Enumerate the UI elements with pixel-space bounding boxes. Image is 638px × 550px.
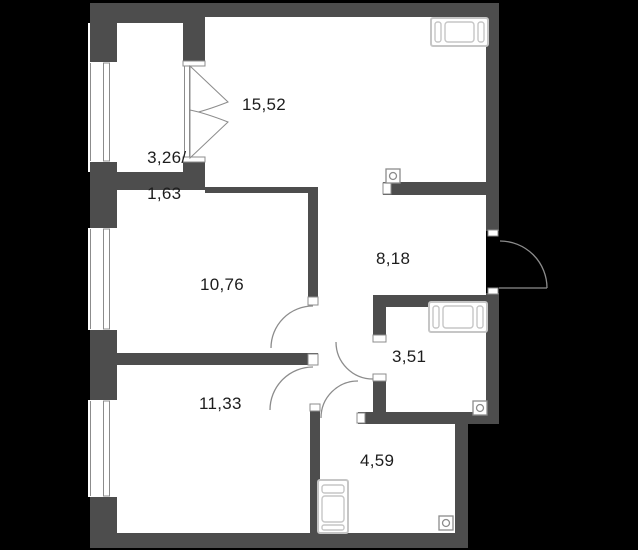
room-label-storage: 4,59: [360, 452, 394, 470]
bathtub-icon: [431, 18, 488, 46]
room-label-bathroom: 3,51: [392, 348, 426, 366]
balcony-area-reduced: 1,63: [147, 184, 181, 203]
room-label-living-room: 15,52: [242, 96, 286, 114]
room-label-bedroom-upper: 10,76: [200, 276, 244, 294]
bathtub-icon: [429, 302, 487, 332]
room-label-hallway: 8,18: [376, 250, 410, 268]
balcony-area-full: 3,26/: [147, 148, 186, 167]
floor-plan: 15,52 3,26/ 1,63 10,76 8,18 3,51 11,33 4…: [0, 0, 638, 550]
washing-machine-icon: [318, 480, 348, 533]
floor-areas: [88, 17, 486, 533]
ventilation-grille-icon: [473, 401, 487, 415]
ventilation-grille-icon: [439, 516, 453, 530]
ventilation-grille-icon: [386, 169, 400, 183]
room-label-bedroom-lower: 11,33: [199, 395, 242, 413]
room-label-balcony: 3,26/ 1,63: [127, 131, 186, 221]
floor-plan-drawing: [0, 0, 638, 550]
entrance-door-swing-icon: [488, 230, 547, 294]
